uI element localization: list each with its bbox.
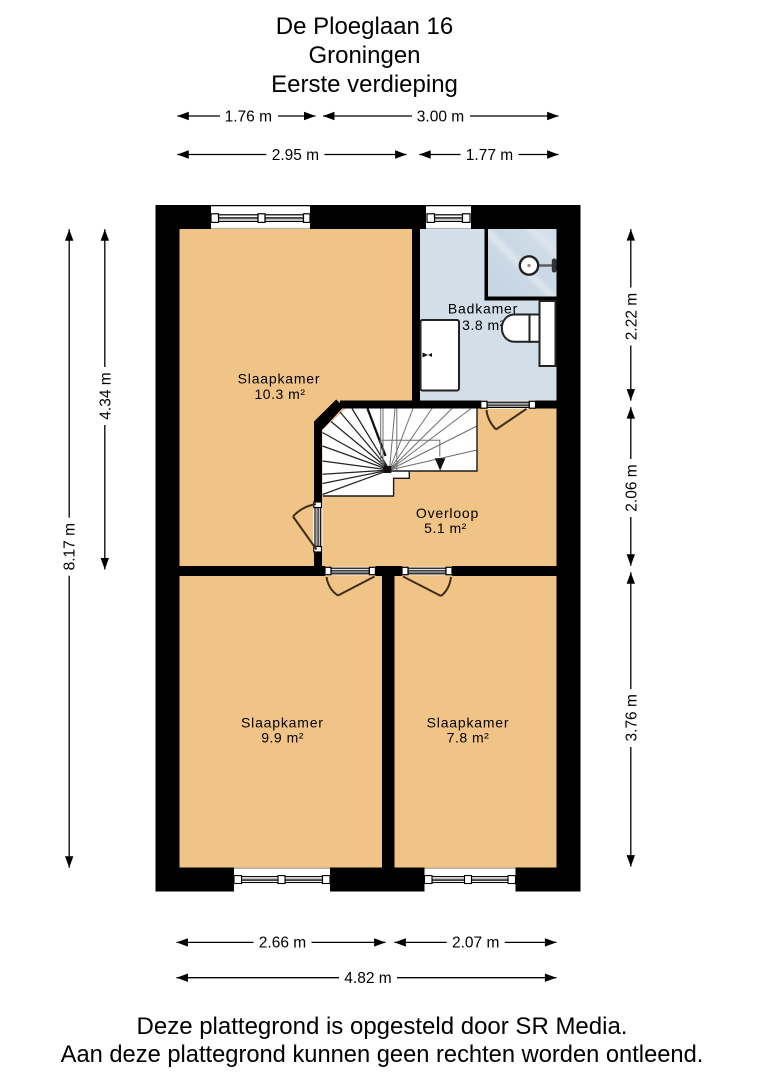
svg-text:2.95 m: 2.95 m [272,147,319,164]
svg-text:1.76 m: 1.76 m [225,109,272,126]
svg-text:2.07 m: 2.07 m [452,934,499,951]
svg-text:Eerste verdieping: Eerste verdieping [271,71,458,98]
svg-text:Deze plattegrond is opgesteld: Deze plattegrond is opgesteld door SR Me… [137,1013,628,1040]
svg-text:7.8 m²: 7.8 m² [447,730,490,746]
svg-text:De Ploeglaan 16: De Ploeglaan 16 [276,13,453,40]
svg-text:4.34 m: 4.34 m [97,372,114,419]
svg-text:3.76 m: 3.76 m [623,694,640,741]
svg-text:2.06 m: 2.06 m [623,464,640,511]
svg-text:10.3 m²: 10.3 m² [255,386,306,402]
svg-text:8.17 m: 8.17 m [62,523,79,570]
svg-text:Groningen: Groningen [308,42,420,69]
svg-text:2.66 m: 2.66 m [259,934,306,951]
svg-text:2.22 m: 2.22 m [623,293,640,340]
svg-text:Slaapkamer: Slaapkamer [241,714,324,730]
svg-text:Badkamer: Badkamer [448,301,518,317]
svg-text:9.9 m²: 9.9 m² [261,730,304,746]
svg-text:5.1 m²: 5.1 m² [424,520,467,536]
svg-text:1.77 m: 1.77 m [466,147,513,164]
svg-text:4.82 m: 4.82 m [344,970,391,987]
svg-text:Slaapkamer: Slaapkamer [238,371,321,387]
svg-text:3.00 m: 3.00 m [417,109,464,126]
svg-text:Slaapkamer: Slaapkamer [427,714,510,730]
svg-text:3.8 m²: 3.8 m² [462,317,505,333]
svg-text:Overloop: Overloop [416,505,479,521]
svg-text:Aan deze plattegrond kunnen ge: Aan deze plattegrond kunnen geen rechten… [61,1042,704,1068]
